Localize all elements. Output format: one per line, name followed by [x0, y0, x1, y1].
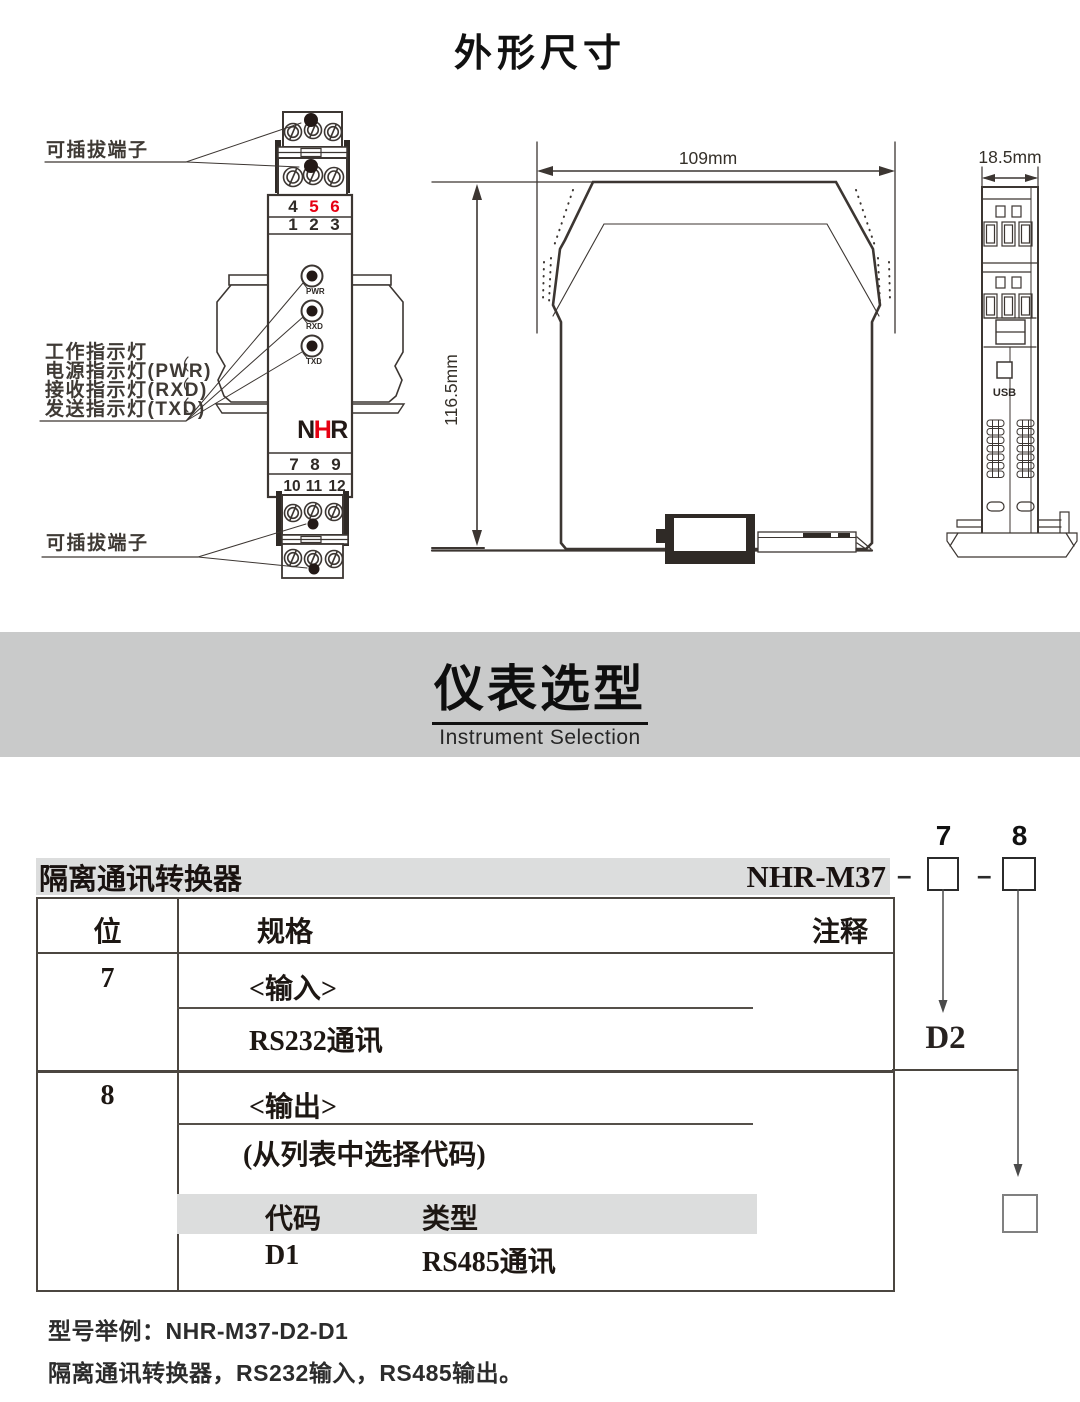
row7-note-d2: D2: [908, 1020, 983, 1057]
model-description-line: 隔离通讯转换器，RS232输入，RS485输出。: [48, 1354, 523, 1388]
output-code-box: [1002, 1194, 1038, 1233]
model-example-line: 型号举例：NHR-M37-D2-D1: [48, 1312, 348, 1346]
selection-arrows: [0, 0, 1080, 1402]
datasheet-page: 外形尺寸: [0, 0, 1080, 1402]
